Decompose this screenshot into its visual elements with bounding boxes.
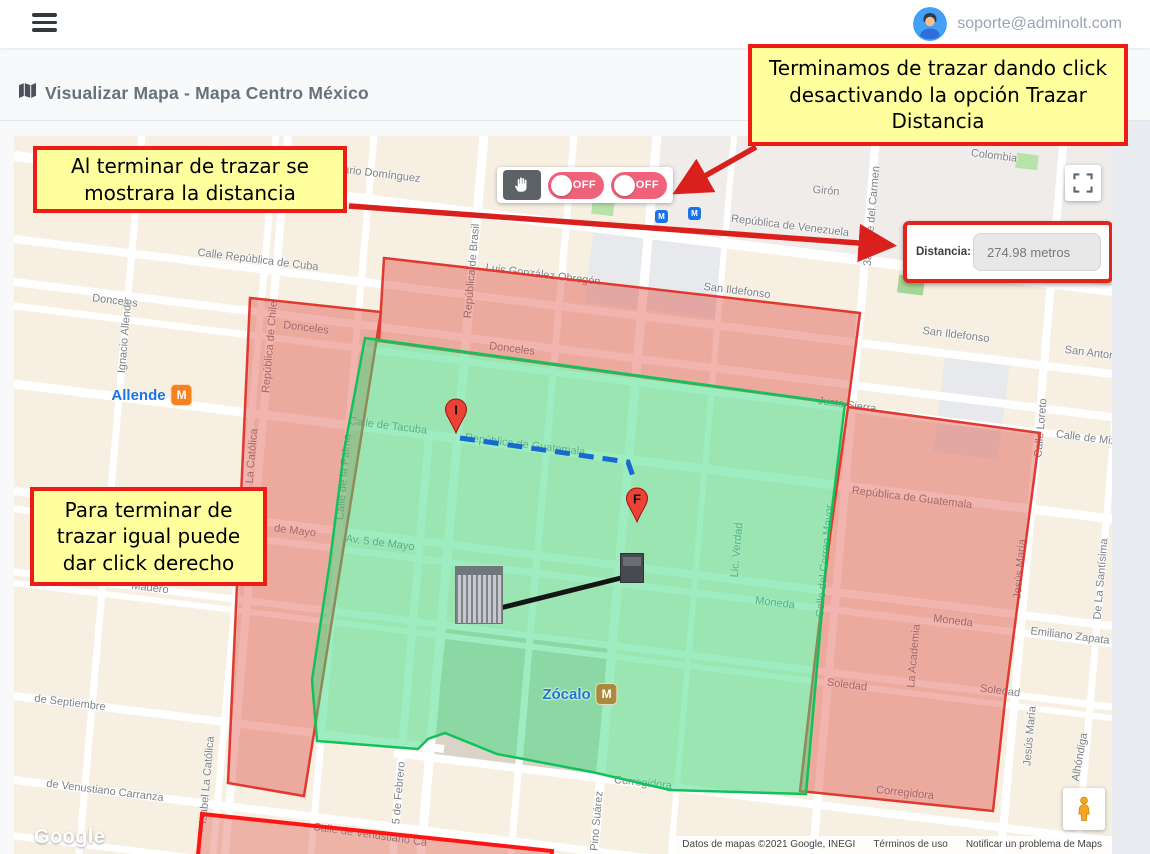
hand-tool-button[interactable] bbox=[503, 170, 541, 200]
callout-right-click: Para terminar de trazar igual puede dar … bbox=[30, 487, 267, 586]
report-problem-link[interactable]: Notificar un problema de Maps bbox=[966, 839, 1102, 850]
toggle-zones[interactable]: OFF bbox=[548, 172, 604, 199]
toggle-trace-distance[interactable]: OFF bbox=[611, 172, 667, 199]
toggle-knob bbox=[551, 175, 572, 196]
distance-trace-line bbox=[460, 438, 634, 479]
distance-widget: Distancia: 274.98 metros bbox=[903, 221, 1112, 283]
map-icon bbox=[18, 82, 37, 104]
callout-end-trace: Terminamos de trazar dando click desacti… bbox=[748, 44, 1128, 146]
map-toolbar: OFF OFF bbox=[497, 167, 673, 203]
pegman-button[interactable] bbox=[1063, 788, 1105, 830]
user-menu: soporte@adminolt.com bbox=[913, 7, 1122, 41]
map-attribution: Datos de mapas ©2021 Google, INEGI Térmi… bbox=[672, 836, 1112, 854]
attribution-text: Datos de mapas ©2021 Google, INEGI bbox=[682, 839, 855, 850]
fiber-link-line bbox=[480, 576, 629, 613]
menu-button[interactable] bbox=[32, 13, 58, 36]
fullscreen-button[interactable] bbox=[1065, 165, 1101, 201]
page-gutter bbox=[1112, 121, 1150, 854]
user-avatar[interactable] bbox=[913, 7, 947, 41]
toggle-label: OFF bbox=[573, 179, 596, 191]
user-email: soporte@adminolt.com bbox=[957, 15, 1122, 33]
google-watermark: Google bbox=[34, 826, 105, 849]
toggle-knob bbox=[614, 175, 635, 196]
top-navbar: soporte@adminolt.com bbox=[0, 0, 1150, 48]
callout-distance-shown: Al terminar de trazar se mostrara la dis… bbox=[33, 146, 347, 213]
distance-value[interactable]: 274.98 metros bbox=[973, 233, 1101, 271]
page-title: Visualizar Mapa - Mapa Centro México bbox=[45, 83, 369, 104]
distance-label: Distancia: bbox=[916, 246, 971, 258]
terms-of-use-link[interactable]: Términos de uso bbox=[873, 839, 947, 850]
toggle-label: OFF bbox=[636, 179, 659, 191]
